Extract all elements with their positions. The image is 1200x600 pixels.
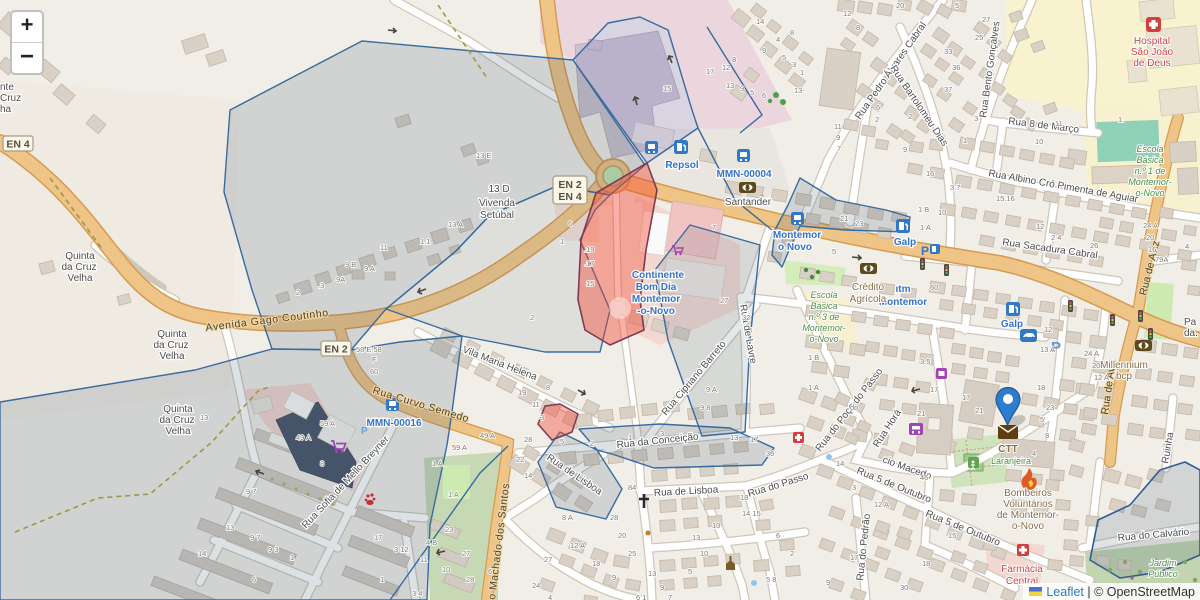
svg-text:10: 10 — [700, 549, 708, 558]
svg-text:1 A: 1 A — [448, 490, 459, 499]
svg-text:CTT: CTT — [998, 444, 1017, 455]
svg-text:2: 2 — [296, 288, 300, 297]
svg-text:5: 5 — [560, 437, 564, 446]
svg-text:27: 27 — [720, 296, 728, 305]
svg-text:Escola: Escola — [810, 290, 837, 300]
svg-text:1: 1 — [963, 136, 967, 145]
svg-text:20: 20 — [896, 1, 904, 10]
svg-text:14: 14 — [198, 549, 206, 558]
svg-text:20: 20 — [1092, 361, 1100, 370]
svg-text:Continente: Continente — [632, 270, 685, 281]
svg-text:12 A: 12 A — [570, 541, 585, 550]
svg-text:1: 1 — [560, 237, 564, 246]
svg-text:13 A: 13 A — [448, 220, 463, 229]
svg-text:bcp: bcp — [1116, 371, 1133, 382]
svg-text:27: 27 — [462, 549, 470, 558]
svg-text:6: 6 — [488, 567, 492, 576]
svg-text:8: 8 — [1045, 431, 1049, 440]
svg-text:12: 12 — [843, 9, 851, 18]
svg-text:da Cruz: da Cruz — [159, 415, 194, 426]
svg-text:23: 23 — [445, 525, 453, 534]
svg-text:3: 3 — [792, 60, 796, 69]
svg-text:Velha: Velha — [165, 426, 190, 437]
svg-text:Santander: Santander — [725, 197, 772, 208]
svg-text:58 E,58: 58 E,58 — [356, 345, 382, 354]
svg-text:21: 21 — [840, 214, 848, 223]
svg-text:4: 4 — [1185, 242, 1189, 251]
svg-text:Crédito: Crédito — [852, 282, 885, 293]
svg-text:9 7: 9 7 — [246, 487, 256, 496]
svg-text:16: 16 — [1148, 245, 1156, 254]
svg-text:10: 10 — [442, 565, 450, 574]
svg-text:Setúbal: Setúbal — [480, 210, 514, 221]
svg-text:Repsol: Repsol — [665, 160, 699, 171]
svg-text:1.: 1. — [1118, 115, 1124, 124]
svg-text:13: 13 — [648, 569, 656, 578]
svg-text:da.: da. — [1184, 328, 1198, 339]
svg-text:o Novo: o Novo — [778, 242, 812, 253]
svg-text:37: 37 — [944, 85, 952, 94]
svg-text:1: 1 — [290, 553, 294, 562]
svg-text:8: 8 — [546, 383, 550, 392]
svg-text:6: 6 — [762, 91, 766, 100]
svg-text:24 A: 24 A — [1084, 349, 1099, 358]
svg-text:MMN-00016: MMN-00016 — [366, 418, 421, 429]
svg-text:6: 6 — [776, 531, 780, 540]
svg-text:4: 4 — [1032, 449, 1036, 458]
svg-text:25: 25 — [975, 33, 983, 42]
svg-text:5: 5 — [782, 53, 786, 62]
svg-text:3: 3 — [660, 429, 664, 438]
svg-text:27: 27 — [544, 555, 552, 564]
svg-text:7: 7 — [712, 223, 716, 232]
svg-text:.19: .19 — [584, 245, 594, 254]
svg-text:o-Novo: o-Novo — [809, 334, 838, 344]
svg-text:12: 12 — [722, 63, 730, 72]
svg-text:Montemor: Montemor — [773, 230, 821, 241]
svg-text:9: 9 — [903, 145, 907, 154]
svg-text:9: 9 — [762, 46, 766, 55]
svg-text:12 A: 12 A — [874, 500, 889, 509]
svg-text:30: 30 — [900, 583, 908, 592]
svg-text:5: 5 — [688, 567, 692, 576]
svg-text:1: 1 — [380, 575, 384, 584]
svg-text:14: 14 — [836, 459, 844, 468]
svg-text:17: 17 — [962, 393, 970, 402]
svg-text:14: 14 — [756, 17, 764, 26]
svg-text:8: 8 — [790, 28, 794, 37]
svg-text:10: 10 — [712, 521, 720, 530]
svg-text:de Deus: de Deus — [1133, 58, 1170, 69]
svg-text:60: 60 — [370, 367, 378, 376]
svg-text:2: 2 — [590, 439, 594, 448]
svg-text:5: 5 — [1040, 415, 1044, 424]
svg-text:8: 8 — [732, 55, 736, 64]
svg-text:da Cruz: da Cruz — [153, 340, 188, 351]
svg-text:28: 28 — [610, 513, 618, 522]
svg-text:59 A: 59 A — [452, 443, 467, 452]
svg-text:59 A: 59 A — [320, 419, 335, 428]
svg-text:Cruz: Cruz — [0, 93, 21, 104]
svg-text:46: 46 — [920, 473, 928, 482]
svg-text:Hospital: Hospital — [1134, 36, 1170, 47]
svg-text:6: 6 — [568, 219, 572, 228]
svg-text:P: P — [921, 244, 929, 258]
svg-text:9: 9 — [826, 578, 830, 587]
svg-text:EN 2: EN 2 — [558, 179, 582, 191]
svg-text:9: 9 — [836, 133, 840, 142]
svg-text:EN 4: EN 4 — [6, 139, 30, 151]
svg-text:23: 23 — [855, 219, 863, 228]
svg-text:5 8: 5 8 — [766, 575, 776, 584]
svg-text:8 A: 8 A — [562, 513, 573, 522]
svg-text:28: 28 — [466, 575, 474, 584]
svg-text:São João: São João — [1131, 47, 1174, 58]
svg-text:18: 18 — [922, 559, 930, 568]
svg-text:1 A: 1 A — [808, 383, 819, 392]
svg-text:3: 3 — [540, 413, 544, 422]
svg-text:Galp: Galp — [1001, 319, 1023, 330]
svg-text:Laranjeira: Laranjeira — [991, 456, 1031, 466]
svg-text:49 A: 49 A — [296, 433, 311, 442]
svg-text:36: 36 — [952, 63, 960, 72]
svg-text:24: 24 — [532, 581, 540, 590]
svg-text:6: 6 — [876, 103, 880, 112]
svg-text:17: 17 — [374, 533, 382, 542]
svg-text:Quinta: Quinta — [157, 329, 187, 340]
svg-text:32: 32 — [742, 313, 750, 322]
svg-text:3: 3 — [852, 483, 856, 492]
svg-text:o-Novo: o-Novo — [1135, 188, 1164, 198]
svg-text:6 1: 6 1 — [636, 593, 646, 600]
svg-text:9 A: 9 A — [364, 264, 375, 273]
svg-text:25: 25 — [628, 549, 636, 558]
svg-text:Bombeiros: Bombeiros — [1004, 488, 1052, 499]
svg-text:6: 6 — [252, 575, 256, 584]
svg-text:n.º 3 de: n.º 3 de — [809, 312, 840, 322]
svg-text:Básica: Básica — [810, 301, 837, 311]
svg-text:13 D: 13 D — [488, 184, 509, 195]
svg-text:2: 2 — [790, 549, 794, 558]
svg-text:11: 11 — [1055, 119, 1063, 128]
svg-text:13: 13 — [200, 413, 208, 422]
svg-text:15.16: 15.16 — [996, 194, 1015, 203]
svg-text:o-Novo: o-Novo — [1012, 521, 1045, 532]
svg-text:19: 19 — [518, 388, 526, 397]
svg-text:16: 16 — [926, 169, 934, 178]
svg-text:8: 8 — [856, 23, 860, 32]
svg-text:12 A: 12 A — [1094, 373, 1109, 382]
svg-text:3.7: 3.7 — [950, 183, 960, 192]
svg-text:do: do — [850, 403, 858, 412]
svg-text:Público: Público — [1148, 569, 1178, 579]
svg-text:13 A: 13 A — [1040, 345, 1055, 354]
svg-text:-o-Novo: -o-Novo — [637, 306, 675, 317]
svg-text:Jardim: Jardim — [1148, 558, 1177, 568]
svg-text:3: 3 — [974, 114, 978, 123]
svg-text:13 E: 13 E — [476, 151, 491, 160]
svg-text:17: 17 — [750, 435, 758, 444]
svg-text:da Cruz: da Cruz — [61, 262, 96, 273]
svg-text:14: 14 — [524, 471, 532, 480]
svg-text:10: 10 — [1035, 137, 1043, 146]
svg-text:3 12: 3 12 — [394, 545, 409, 554]
svg-text:Básica: Básica — [1136, 155, 1163, 165]
svg-text:7: 7 — [668, 593, 672, 600]
svg-text:2 4: 2 4 — [1051, 233, 1061, 242]
svg-text:4: 4 — [776, 35, 780, 44]
svg-text:17: 17 — [850, 553, 858, 562]
svg-text:18: 18 — [592, 559, 600, 568]
svg-text:12: 12 — [1036, 222, 1044, 231]
svg-text:EN 4: EN 4 — [558, 191, 582, 203]
svg-text:21: 21 — [975, 406, 983, 415]
svg-text:36: 36 — [766, 449, 774, 458]
svg-text:Voluntários: Voluntários — [1003, 499, 1052, 510]
svg-text:Agrícola: Agrícola — [850, 294, 887, 305]
svg-text:MMN-00004: MMN-00004 — [716, 169, 771, 180]
svg-text:12: 12 — [1044, 325, 1052, 334]
svg-text:Pa: Pa — [1184, 317, 1197, 328]
svg-text:28: 28 — [524, 435, 532, 444]
svg-text:23: 23 — [1046, 403, 1054, 412]
svg-text:5: 5 — [750, 88, 754, 97]
svg-text:Montemor-: Montemor- — [1128, 177, 1171, 187]
svg-text:17: 17 — [706, 67, 714, 76]
svg-text:9 8: 9 8 — [700, 403, 710, 412]
svg-text:Bom Dia: Bom Dia — [636, 282, 677, 293]
svg-text:7: 7 — [837, 144, 841, 153]
svg-text:9A: 9A — [336, 275, 345, 284]
svg-text:Escola: Escola — [1136, 144, 1163, 154]
svg-text:Velha: Velha — [67, 273, 92, 284]
svg-text:13-: 13- — [794, 86, 805, 95]
svg-text:22: 22 — [516, 455, 524, 464]
svg-text:8: 8 — [320, 459, 324, 468]
svg-text:1.1: 1.1 — [420, 237, 430, 246]
svg-text:Montemor-: Montemor- — [802, 323, 845, 333]
svg-text:15: 15 — [586, 279, 594, 288]
svg-text:13: 13 — [226, 523, 234, 532]
svg-text:14 15: 14 15 — [742, 509, 761, 518]
svg-text:11: 11 — [834, 122, 842, 131]
svg-text:84: 84 — [628, 483, 636, 492]
svg-text:18: 18 — [740, 493, 748, 502]
svg-text:9 7: 9 7 — [250, 533, 260, 542]
svg-text:11: 11 — [420, 555, 428, 564]
svg-text:15: 15 — [948, 531, 956, 540]
svg-text:26: 26 — [1090, 241, 1098, 250]
svg-text:13: 13 — [730, 433, 738, 442]
svg-text:11: 11 — [380, 243, 388, 252]
svg-text:3.5: 3.5 — [920, 357, 930, 366]
svg-text:Millennium: Millennium — [1100, 360, 1148, 371]
svg-text:15: 15 — [663, 84, 671, 93]
svg-text:1 B: 1 B — [918, 205, 929, 214]
svg-text:F: F — [372, 355, 377, 364]
svg-text:Farmácia: Farmácia — [1001, 564, 1043, 575]
svg-text:9: 9 — [612, 573, 616, 582]
svg-text:EN 2: EN 2 — [324, 344, 348, 356]
svg-text:Montemor: Montemor — [632, 294, 680, 305]
svg-text:Quinta: Quinta — [163, 404, 193, 415]
svg-text:9: 9 — [740, 84, 744, 93]
svg-text:9 3: 9 3 — [268, 545, 278, 554]
svg-text:5: 5 — [832, 247, 836, 256]
svg-text:.17: .17 — [584, 259, 594, 268]
svg-text:33: 33 — [944, 47, 952, 56]
svg-text:9 A: 9 A — [706, 385, 717, 394]
svg-text:79A: 79A — [1155, 255, 1168, 264]
svg-text:ha: ha — [0, 104, 12, 115]
svg-text:18: 18 — [1037, 383, 1045, 392]
svg-text:9 B: 9 B — [345, 260, 356, 269]
svg-text:1 B: 1 B — [808, 353, 819, 362]
svg-text:3 4: 3 4 — [412, 589, 422, 598]
svg-text:10: 10 — [938, 208, 946, 217]
svg-text:21: 21 — [917, 409, 925, 418]
svg-text:Galp: Galp — [894, 237, 916, 248]
svg-text:.3: .3 — [318, 281, 324, 290]
svg-text:de Montemor-: de Montemor- — [997, 510, 1059, 521]
svg-text:4: 4 — [548, 593, 552, 600]
svg-text:1 A: 1 A — [920, 223, 931, 232]
svg-text:11: 11 — [532, 400, 540, 409]
svg-text:13: 13 — [726, 81, 734, 90]
svg-text:1: 1 — [628, 433, 632, 442]
svg-text:17: 17 — [930, 385, 938, 394]
svg-text:Vivenda: Vivenda — [479, 198, 515, 209]
svg-text:1 A: 1 A — [432, 459, 443, 468]
svg-text:Quinta: Quinta — [65, 251, 95, 262]
svg-text:4 B: 4 B — [426, 538, 437, 547]
svg-text:49 A: 49 A — [480, 431, 495, 440]
svg-text:1: 1 — [800, 68, 804, 77]
svg-text:Velha: Velha — [159, 351, 184, 362]
svg-text:2: 2 — [530, 313, 534, 322]
svg-text:13: 13 — [692, 533, 700, 542]
svg-text:2: 2 — [908, 112, 912, 121]
svg-text:2: 2 — [875, 115, 879, 124]
svg-text:9: 9 — [660, 583, 664, 592]
svg-text:27: 27 — [982, 15, 990, 24]
svg-text:n.º 1 de: n.º 1 de — [1135, 166, 1166, 176]
svg-text:5: 5 — [955, 1, 959, 10]
svg-text:ıtm: ıtm — [896, 284, 911, 295]
svg-text:20: 20 — [1146, 233, 1154, 242]
svg-text:24 A: 24 A — [1143, 221, 1158, 230]
svg-text:20: 20 — [618, 531, 626, 540]
svg-text:nte: nte — [0, 82, 14, 93]
svg-text:60: 60 — [930, 283, 938, 292]
